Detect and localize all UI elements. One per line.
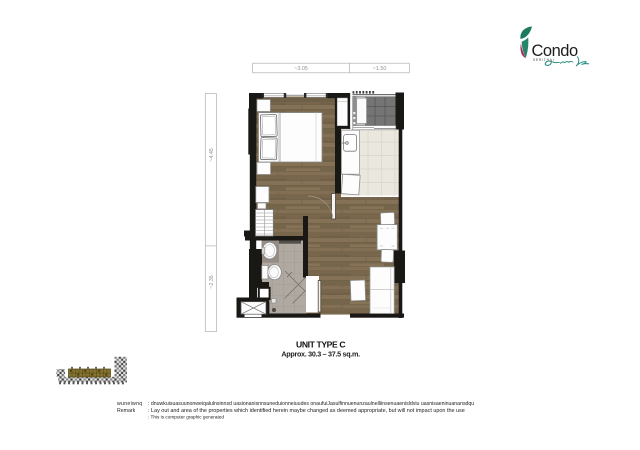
svg-text:~3.05: ~3.05 bbox=[294, 66, 308, 72]
svg-text:UNIT TYPE C: UNIT TYPE C bbox=[296, 340, 345, 350]
svg-text:: Lay out and area of the prop: : Lay out and area of the properties whi… bbox=[148, 408, 465, 414]
svg-text:: This is computer graphic ge: : This is computer graphic generated bbox=[148, 414, 224, 419]
svg-text:wuneiwnq: wuneiwnq bbox=[117, 401, 142, 407]
svg-text:: dnuwkuisuasuunonweiqalulnsin: : dnuwkuisuasuunonweiqalulnsinnsd uasion… bbox=[148, 401, 474, 407]
svg-text:~2.35: ~2.35 bbox=[209, 275, 215, 289]
svg-text:Remark: Remark bbox=[117, 408, 136, 414]
svg-text:~1.50: ~1.50 bbox=[373, 66, 387, 72]
svg-text:~4.45: ~4.45 bbox=[209, 148, 215, 162]
svg-text:Approx. 30.3 – 37.5 sq.m.: Approx. 30.3 – 37.5 sq.m. bbox=[281, 349, 360, 358]
